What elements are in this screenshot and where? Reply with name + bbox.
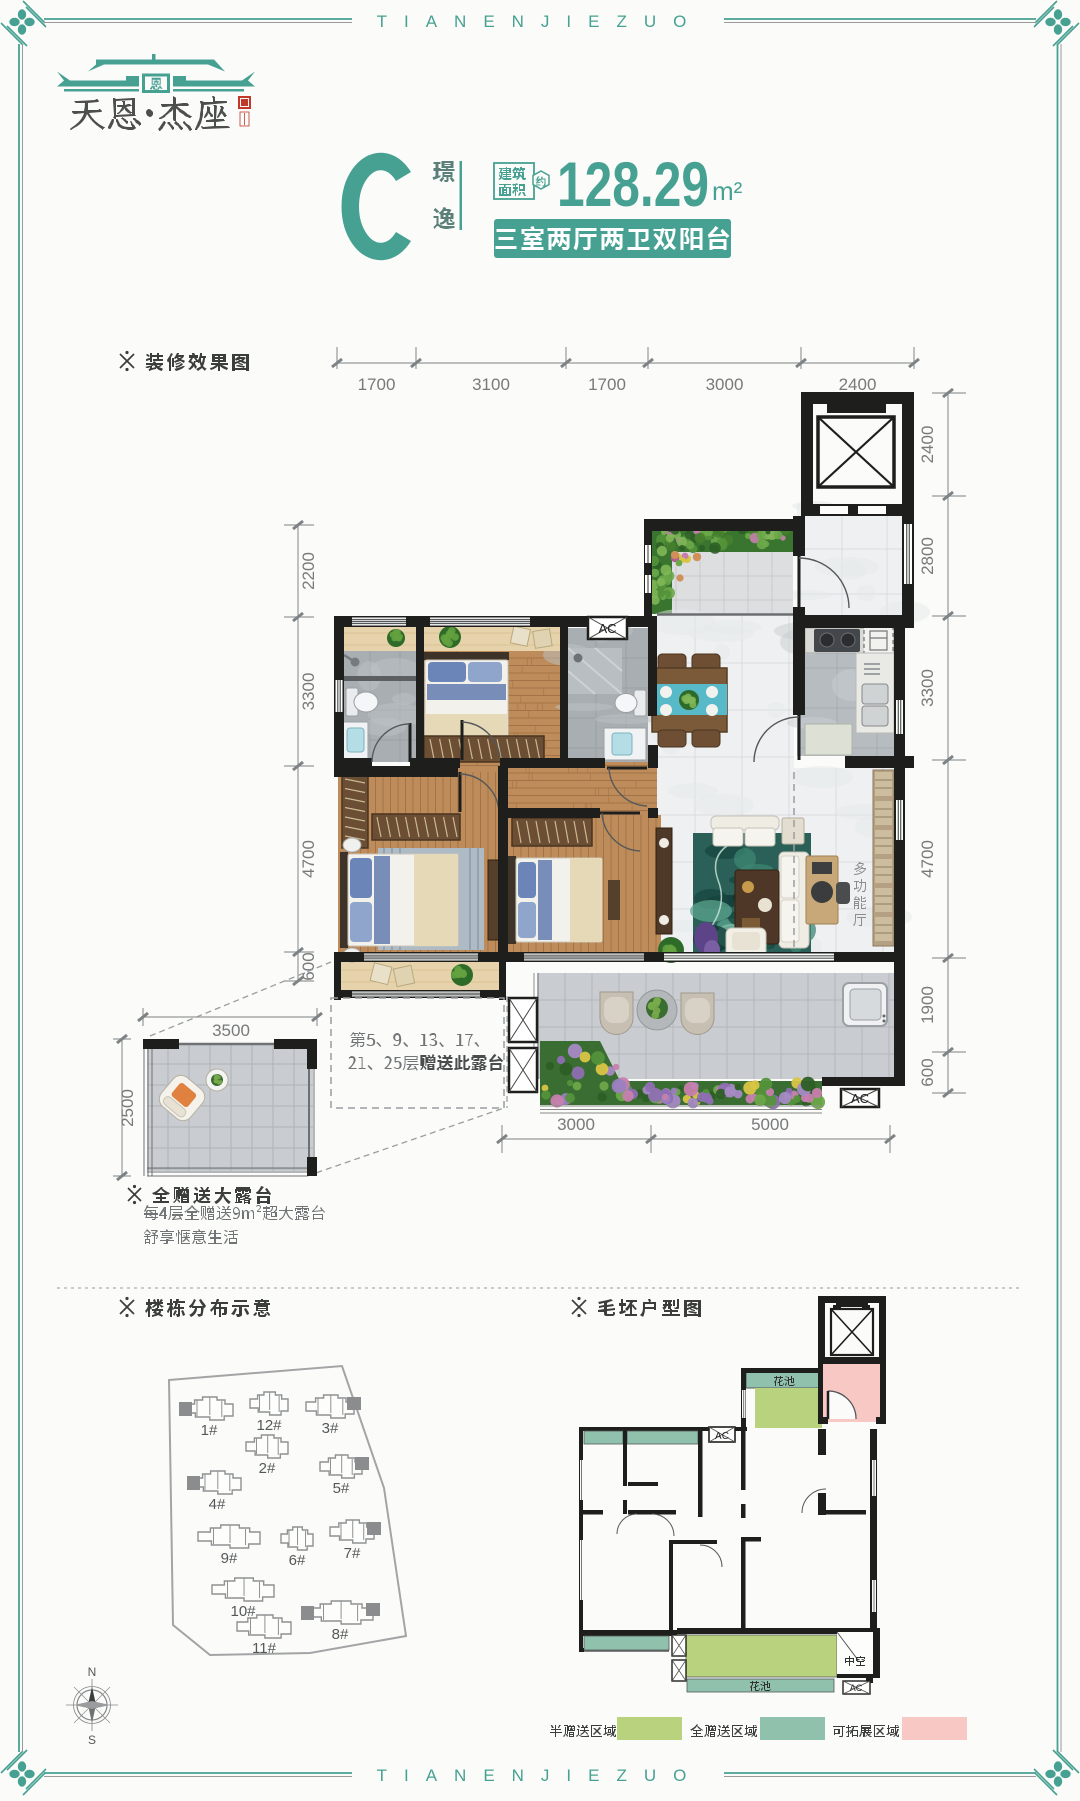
svg-text:7#: 7# [344, 1545, 361, 1562]
svg-text:5000: 5000 [751, 1115, 789, 1134]
svg-text:m²: m² [712, 176, 743, 206]
svg-text:1700: 1700 [588, 375, 626, 394]
svg-text:2500: 2500 [118, 1089, 137, 1127]
svg-text:1700: 1700 [358, 375, 396, 394]
svg-text:2200: 2200 [299, 552, 318, 590]
svg-text:4700: 4700 [299, 840, 318, 878]
svg-text:6#: 6# [289, 1552, 306, 1569]
svg-text:9#: 9# [221, 1550, 238, 1567]
svg-text:5#: 5# [333, 1480, 350, 1497]
svg-text:128.29: 128.29 [557, 150, 709, 220]
svg-text:1#: 1# [201, 1422, 218, 1439]
svg-text:4700: 4700 [918, 840, 937, 878]
svg-text:2400: 2400 [918, 426, 937, 464]
svg-text:3000: 3000 [557, 1115, 595, 1134]
svg-text:3#: 3# [322, 1420, 339, 1437]
svg-text:3100: 3100 [472, 375, 510, 394]
svg-text:S: S [88, 1733, 96, 1747]
svg-text:AC: AC [851, 1091, 869, 1106]
svg-text:AC: AC [850, 1683, 863, 1693]
svg-text:2#: 2# [259, 1460, 276, 1477]
svg-text:3300: 3300 [918, 669, 937, 707]
svg-text:3300: 3300 [299, 673, 318, 711]
svg-text:3500: 3500 [212, 1021, 250, 1040]
svg-text:4#: 4# [209, 1496, 226, 1513]
svg-text:11#: 11# [252, 1640, 277, 1657]
svg-text:2800: 2800 [918, 537, 937, 575]
svg-text:TIANENJIEZUO: TIANENJIEZUO [377, 1766, 704, 1785]
svg-text:600: 600 [918, 1058, 937, 1086]
svg-text:2400: 2400 [839, 375, 877, 394]
svg-text:AC: AC [598, 621, 616, 636]
svg-text:TIANENJIEZUO: TIANENJIEZUO [377, 12, 704, 31]
svg-text:12#: 12# [256, 1417, 282, 1434]
svg-text:AC: AC [715, 1431, 729, 1442]
svg-text:8#: 8# [332, 1626, 349, 1643]
svg-text:N: N [88, 1665, 97, 1679]
svg-text:600: 600 [299, 952, 318, 980]
svg-text:3000: 3000 [706, 375, 744, 394]
svg-text:1900: 1900 [918, 986, 937, 1024]
